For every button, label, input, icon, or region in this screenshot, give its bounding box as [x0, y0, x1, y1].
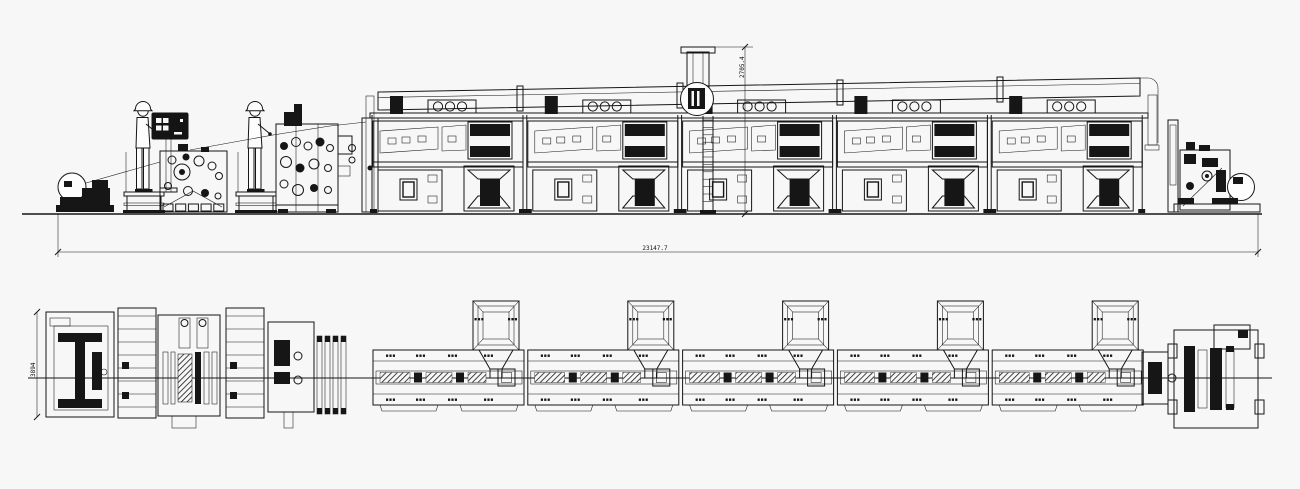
operator-figure [246, 102, 272, 193]
exhaust-hood-plan [783, 301, 829, 378]
roller-bank-plan [317, 336, 346, 414]
rewinder-plan [1168, 325, 1264, 428]
oven-roof-rail [370, 113, 1148, 118]
gauge-cluster [892, 100, 940, 113]
oven-module-plan-3 [683, 301, 834, 411]
oven-module-plan-4 [837, 301, 988, 411]
dim-plan-width: 3894 [30, 362, 37, 377]
overall-length-dimension: 23147.7 [55, 214, 1261, 257]
dim-line-height: 2705.4 [739, 56, 746, 78]
exhaust-stack [681, 47, 716, 116]
oven-module-plan-5 [992, 301, 1143, 411]
operators [123, 102, 277, 214]
plan-width-dimension: 3894 [30, 309, 40, 420]
oven-module-elevation-1 [370, 96, 526, 213]
web-path [86, 122, 366, 183]
circulation-fan-unit [619, 166, 669, 211]
height-dimension: 2705.4 [698, 44, 753, 217]
exhaust-hood-plan [473, 301, 519, 378]
gauge-cluster [1047, 100, 1095, 113]
oven-module-elevation-5 [989, 96, 1145, 213]
coater-2-elevation [276, 104, 356, 213]
operator-platform-plan [118, 308, 156, 418]
coater-1-elevation [160, 144, 227, 212]
oven-modules-elevation [370, 96, 1145, 213]
circulation-fan-unit [464, 166, 514, 211]
cad-sheet: 23147.7 [0, 0, 1300, 489]
circulation-fan-unit [928, 166, 978, 211]
coater-1-plan [158, 315, 220, 428]
exhaust-hood-plan [628, 301, 674, 378]
hard-hat [246, 102, 264, 111]
oven-module-plan-2 [528, 301, 679, 411]
coater-2-plan [268, 322, 346, 428]
oven-module-plan-1 [373, 301, 524, 411]
exhaust-hood-plan [1092, 301, 1138, 378]
unwinder-plan [46, 312, 114, 417]
oven-module-elevation-2 [525, 96, 681, 213]
circulation-fan-unit [1083, 166, 1133, 211]
hard-hat [134, 102, 152, 111]
oven-modules-plan [373, 301, 1143, 411]
access-ladder [700, 116, 716, 214]
elevation-view: 23147.7 [22, 44, 1262, 257]
gauge-cluster [428, 100, 476, 113]
dim-overall-length: 23147.7 [642, 245, 668, 252]
oven-module-elevation-4 [834, 96, 990, 213]
operator-platform-plan [226, 308, 264, 418]
rewinder-elevation [1168, 120, 1260, 212]
circulation-fan-unit [774, 166, 824, 211]
exhaust-hood-plan [937, 301, 983, 378]
plan-view: 3894 [28, 301, 1272, 428]
machine-line-drawing: 23147.7 [0, 0, 1300, 489]
unwinder-elevation [56, 173, 114, 212]
